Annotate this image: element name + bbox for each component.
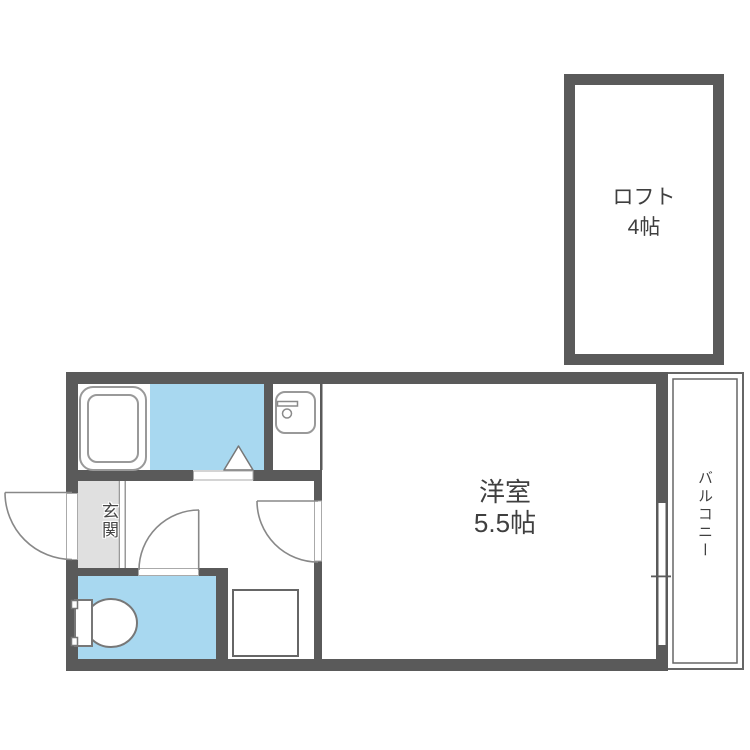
- sink-faucet: [278, 402, 298, 407]
- sliding-window-outer-line: [656, 503, 659, 645]
- entrance-door-arc: [5, 493, 72, 560]
- entrance-door-opening: [67, 494, 78, 560]
- bath-kitchen-wall: [264, 383, 273, 481]
- entrance-door: [5, 493, 72, 560]
- main-room-wall-lower: [314, 561, 322, 659]
- storage-square: [233, 590, 298, 656]
- toilet-top-wall-right: [199, 568, 228, 576]
- main-room-door-opening: [315, 501, 322, 561]
- loft-name: ロフト: [564, 183, 724, 213]
- toilet-tank-tab-top: [72, 601, 78, 609]
- toilet: [72, 599, 138, 647]
- sliding-window-center-tick: [651, 576, 671, 578]
- toilet-right-wall: [216, 576, 228, 659]
- main-room-wall-upper: [314, 481, 322, 501]
- partition-wall-right: [253, 470, 322, 481]
- sink-drain: [283, 409, 292, 418]
- toilet-top-wall-left: [78, 568, 138, 576]
- main-room-size: 5.5帖: [395, 508, 615, 539]
- bath-door-opening: [194, 471, 254, 480]
- kitchen-room-divider-line: [320, 383, 323, 470]
- toilet-door-opening: [139, 569, 199, 576]
- main-room-name: 洋室: [395, 477, 615, 508]
- bottom-wall: [66, 659, 668, 671]
- loft-size: 4帖: [564, 213, 724, 243]
- bathroom-floor: [150, 384, 264, 470]
- floor-plan: ロフト 4帖 洋室 5.5帖 バルコニー 玄関: [0, 0, 750, 750]
- main-room-door-arc: [257, 501, 318, 562]
- balcony-sliding-window: [651, 503, 671, 645]
- right-wall-lower: [656, 645, 668, 671]
- sliding-window-inner-line: [666, 503, 669, 645]
- kitchen-sink: [276, 392, 315, 433]
- toilet-tank-tab-bottom: [72, 638, 78, 646]
- balcony-label: バルコニー: [694, 470, 715, 560]
- bathtub: [80, 387, 146, 470]
- loft-label: ロフト 4帖: [564, 183, 724, 243]
- main-room-label: 洋室 5.5帖: [395, 477, 615, 539]
- top-wall: [66, 372, 668, 384]
- entrance-label: 玄関: [96, 502, 121, 540]
- floor-plan-drawing: [0, 0, 750, 750]
- partition-wall-left: [66, 470, 193, 481]
- entrance-step-line-2: [125, 481, 127, 568]
- main-room-door: [257, 501, 318, 562]
- right-wall-upper: [656, 372, 668, 503]
- toilet-door-arc: [139, 510, 199, 570]
- toilet-door: [139, 510, 199, 570]
